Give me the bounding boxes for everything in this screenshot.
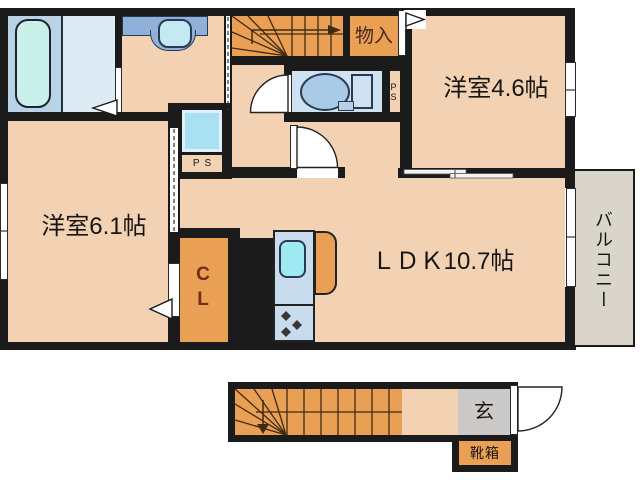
window-balcony-door bbox=[566, 188, 576, 287]
staircase-up-icon bbox=[232, 16, 343, 56]
wall-bottom-2f bbox=[0, 342, 576, 350]
room61-wall-c bbox=[168, 317, 180, 342]
entrance-label: 玄 bbox=[458, 392, 510, 432]
room46-bottom-wall bbox=[398, 168, 575, 178]
toilet-door bbox=[284, 74, 292, 113]
room46-label: 洋室4.6帖 bbox=[416, 74, 576, 104]
wall-right-a bbox=[565, 8, 575, 62]
wall-left-lower bbox=[0, 280, 8, 350]
wall-left-upper bbox=[0, 8, 8, 183]
stairs-monoire-wall bbox=[343, 8, 350, 65]
storage-label: 物入 bbox=[350, 16, 398, 56]
toilet-top-wall bbox=[284, 62, 412, 71]
floorplan-canvas: PS bbox=[0, 0, 640, 480]
wall-top bbox=[8, 8, 575, 16]
toilet-foot bbox=[338, 101, 354, 111]
window-room61-left bbox=[0, 183, 8, 280]
bath-bottom-wall bbox=[8, 112, 178, 121]
ps-washroom-label: PS bbox=[182, 155, 222, 172]
closet-door bbox=[168, 263, 180, 317]
bath-washroom-wall bbox=[115, 16, 122, 67]
shoe-box-label: 靴箱 bbox=[459, 441, 511, 465]
washroom-hall-partition bbox=[224, 16, 232, 112]
hall-ldk-door-leaf bbox=[290, 125, 298, 169]
kitchen-sink-icon bbox=[279, 240, 306, 278]
entrance-corridor bbox=[402, 389, 458, 435]
closet-top-wall bbox=[180, 228, 240, 238]
storage-door bbox=[398, 10, 406, 56]
closet-right-wall bbox=[228, 238, 273, 342]
room61-wall-a bbox=[168, 121, 180, 128]
front-door-arc bbox=[518, 387, 562, 431]
bathroom-door bbox=[115, 67, 122, 113]
staircase-down-icon bbox=[235, 389, 402, 435]
stove-unit bbox=[273, 304, 315, 342]
hall-ldk-door-gap bbox=[297, 167, 338, 178]
toilet-bottom-wall bbox=[284, 112, 412, 122]
closet-label: CL bbox=[190, 255, 216, 323]
washbasin-bowl bbox=[158, 19, 192, 48]
ps-toilet-label: PS bbox=[385, 72, 401, 112]
front-door-leaf bbox=[510, 385, 518, 435]
ps-shaft-window bbox=[182, 110, 222, 152]
bathtub-icon bbox=[15, 19, 51, 108]
refrigerator-icon bbox=[314, 231, 337, 295]
ldk-label: ＬＤＫ10.7帖 bbox=[358, 247, 528, 277]
toilet-left-wall bbox=[284, 62, 292, 74]
room61-label: 洋室6.1帖 bbox=[18, 212, 170, 242]
bathroom-divider bbox=[61, 16, 63, 112]
balcony-label: バルコニー bbox=[586, 192, 620, 328]
toilet-tank bbox=[351, 74, 373, 109]
room46-left-wall bbox=[400, 56, 412, 170]
